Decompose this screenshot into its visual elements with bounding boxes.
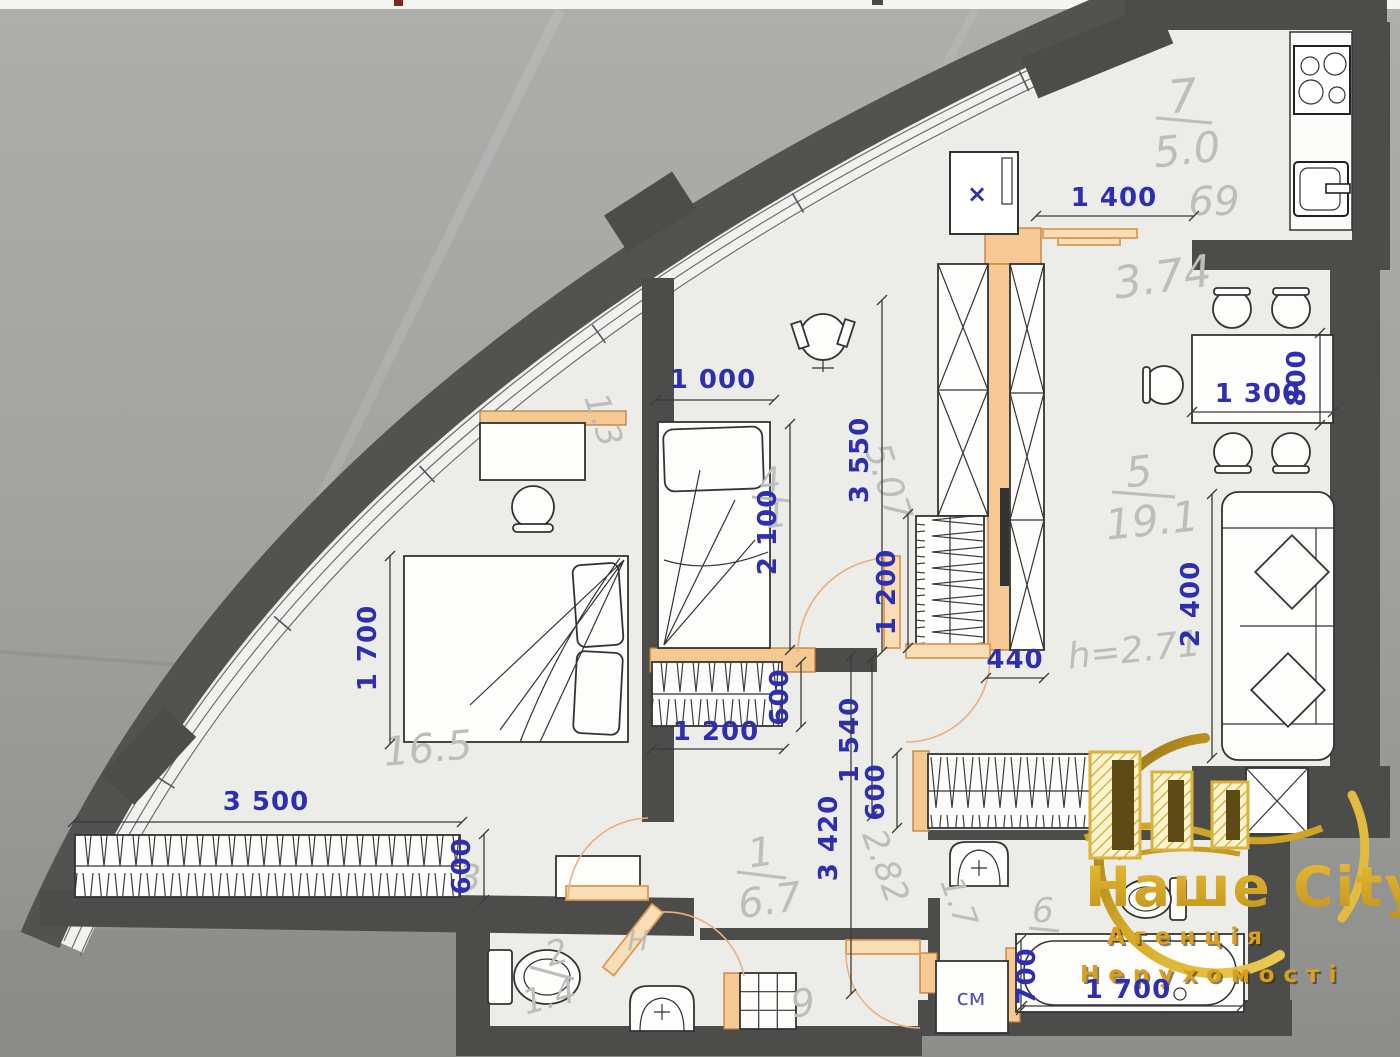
wardrobe-column-left bbox=[938, 264, 988, 516]
room-bath-num: 6 bbox=[1032, 891, 1054, 931]
svg-text:600: 600 bbox=[765, 668, 795, 725]
room-living-num: 5 bbox=[1123, 446, 1155, 498]
floor-plan-scan: × bbox=[0, 0, 1400, 1057]
faded-69: 69 bbox=[1189, 179, 1240, 225]
sofa bbox=[1222, 492, 1334, 760]
scan-artifact bbox=[872, 0, 883, 5]
pillow bbox=[572, 562, 624, 647]
logo-subtitle-line1: Агенція bbox=[1107, 924, 1271, 950]
wc-sink-icon bbox=[630, 986, 694, 1031]
hanging-wardrobe bbox=[916, 516, 984, 648]
room-kitchen-num: 7 bbox=[1165, 68, 1200, 125]
washing-machine: см bbox=[936, 961, 1008, 1033]
svg-text:3 500: 3 500 bbox=[223, 787, 309, 817]
svg-text:3 550: 3 550 bbox=[845, 417, 875, 503]
svg-text:800: 800 bbox=[1282, 349, 1312, 406]
paper-shadow bbox=[0, 930, 458, 1057]
stove-icon bbox=[1294, 46, 1350, 114]
wardrobe-long bbox=[75, 835, 460, 897]
room-hall-area: 6.7 bbox=[735, 874, 805, 928]
svg-text:1 000: 1 000 bbox=[670, 365, 756, 395]
svg-text:1 200: 1 200 bbox=[872, 549, 902, 635]
floor-grate bbox=[724, 973, 796, 1029]
svg-text:2 100: 2 100 bbox=[753, 489, 783, 575]
svg-text:2 400: 2 400 bbox=[1176, 561, 1206, 647]
svg-text:600: 600 bbox=[447, 837, 477, 894]
room-living-area: 19.1 bbox=[1103, 491, 1201, 550]
pillow bbox=[573, 651, 623, 735]
scan-artifact bbox=[394, 0, 403, 6]
washer-label: см bbox=[957, 986, 986, 1011]
svg-text:600: 600 bbox=[861, 763, 891, 820]
logo-title: Наше City bbox=[1085, 855, 1400, 919]
faded-165: 16.5 bbox=[382, 722, 475, 776]
svg-text:440: 440 bbox=[986, 645, 1043, 675]
kitchen-sink-icon bbox=[1294, 162, 1350, 216]
svg-text:700: 700 bbox=[1012, 947, 1042, 1004]
svg-text:1 700: 1 700 bbox=[353, 605, 383, 691]
desk-chair bbox=[512, 486, 554, 532]
faded-H: H bbox=[627, 924, 648, 957]
svg-text:1 400: 1 400 bbox=[1071, 183, 1157, 213]
wardrobe-column-right bbox=[1010, 264, 1044, 650]
double-bed bbox=[404, 556, 628, 742]
fridge-icon: × bbox=[950, 152, 1018, 234]
fridge-x-mark: × bbox=[967, 180, 987, 208]
svg-text:3 420: 3 420 bbox=[814, 795, 844, 881]
svg-text:1 700: 1 700 bbox=[1085, 975, 1171, 1005]
desk bbox=[480, 423, 585, 480]
svg-text:1 200: 1 200 bbox=[673, 717, 759, 747]
floor-plan-svg: × bbox=[0, 0, 1400, 1057]
tv-icon bbox=[1000, 488, 1009, 586]
room-kitchen-area: 5.0 bbox=[1151, 122, 1223, 178]
